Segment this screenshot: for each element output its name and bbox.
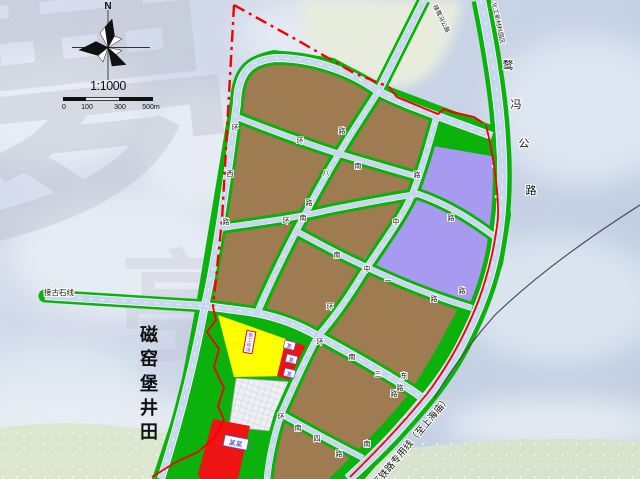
svg-text:井: 井 bbox=[140, 397, 158, 418]
svg-text:路: 路 bbox=[336, 449, 343, 458]
svg-text:南: 南 bbox=[334, 250, 341, 259]
svg-text:路: 路 bbox=[391, 389, 398, 398]
svg-text:八: 八 bbox=[323, 170, 330, 177]
svg-text:路: 路 bbox=[459, 286, 466, 295]
svg-text:冯: 冯 bbox=[511, 98, 522, 111]
svg-text:路: 路 bbox=[448, 213, 455, 222]
svg-text:500m: 500m bbox=[142, 104, 160, 111]
svg-text:环: 环 bbox=[283, 217, 290, 225]
svg-text:四: 四 bbox=[314, 435, 321, 443]
svg-text:磁: 磁 bbox=[140, 324, 158, 345]
svg-text:南: 南 bbox=[349, 352, 356, 361]
svg-text:西: 西 bbox=[227, 170, 234, 178]
svg-text:中: 中 bbox=[393, 217, 400, 226]
svg-text:环: 环 bbox=[327, 303, 334, 311]
svg-text:田: 田 bbox=[140, 422, 158, 442]
svg-text:南: 南 bbox=[364, 439, 371, 448]
svg-text:环: 环 bbox=[232, 124, 239, 132]
svg-text:路: 路 bbox=[306, 198, 313, 207]
svg-text:窑: 窑 bbox=[140, 348, 158, 369]
svg-text:300: 300 bbox=[114, 104, 126, 111]
svg-text:东: 东 bbox=[401, 371, 408, 380]
svg-text:0: 0 bbox=[62, 104, 66, 111]
svg-text:路: 路 bbox=[223, 217, 230, 226]
svg-text:一: 一 bbox=[385, 278, 392, 285]
svg-text:1:1000: 1:1000 bbox=[90, 79, 126, 93]
svg-text:路: 路 bbox=[339, 126, 346, 135]
svg-text:环: 环 bbox=[317, 338, 324, 346]
svg-text:公: 公 bbox=[519, 138, 530, 150]
svg-text:南: 南 bbox=[300, 213, 307, 222]
svg-text:路: 路 bbox=[397, 383, 404, 392]
svg-text:中: 中 bbox=[364, 264, 371, 273]
svg-text:路: 路 bbox=[431, 294, 438, 303]
svg-text:路: 路 bbox=[414, 170, 421, 179]
svg-text:南: 南 bbox=[355, 161, 362, 170]
svg-text:三: 三 bbox=[375, 370, 382, 378]
svg-text:环: 环 bbox=[297, 137, 304, 145]
svg-text:100: 100 bbox=[81, 104, 93, 111]
svg-text:路: 路 bbox=[526, 184, 537, 197]
svg-text:堡: 堡 bbox=[139, 373, 158, 394]
svg-text:鹜: 鹜 bbox=[503, 58, 514, 72]
svg-text:环: 环 bbox=[278, 413, 285, 421]
svg-text:接古石线: 接古石线 bbox=[44, 287, 74, 297]
svg-text:南: 南 bbox=[295, 423, 302, 432]
